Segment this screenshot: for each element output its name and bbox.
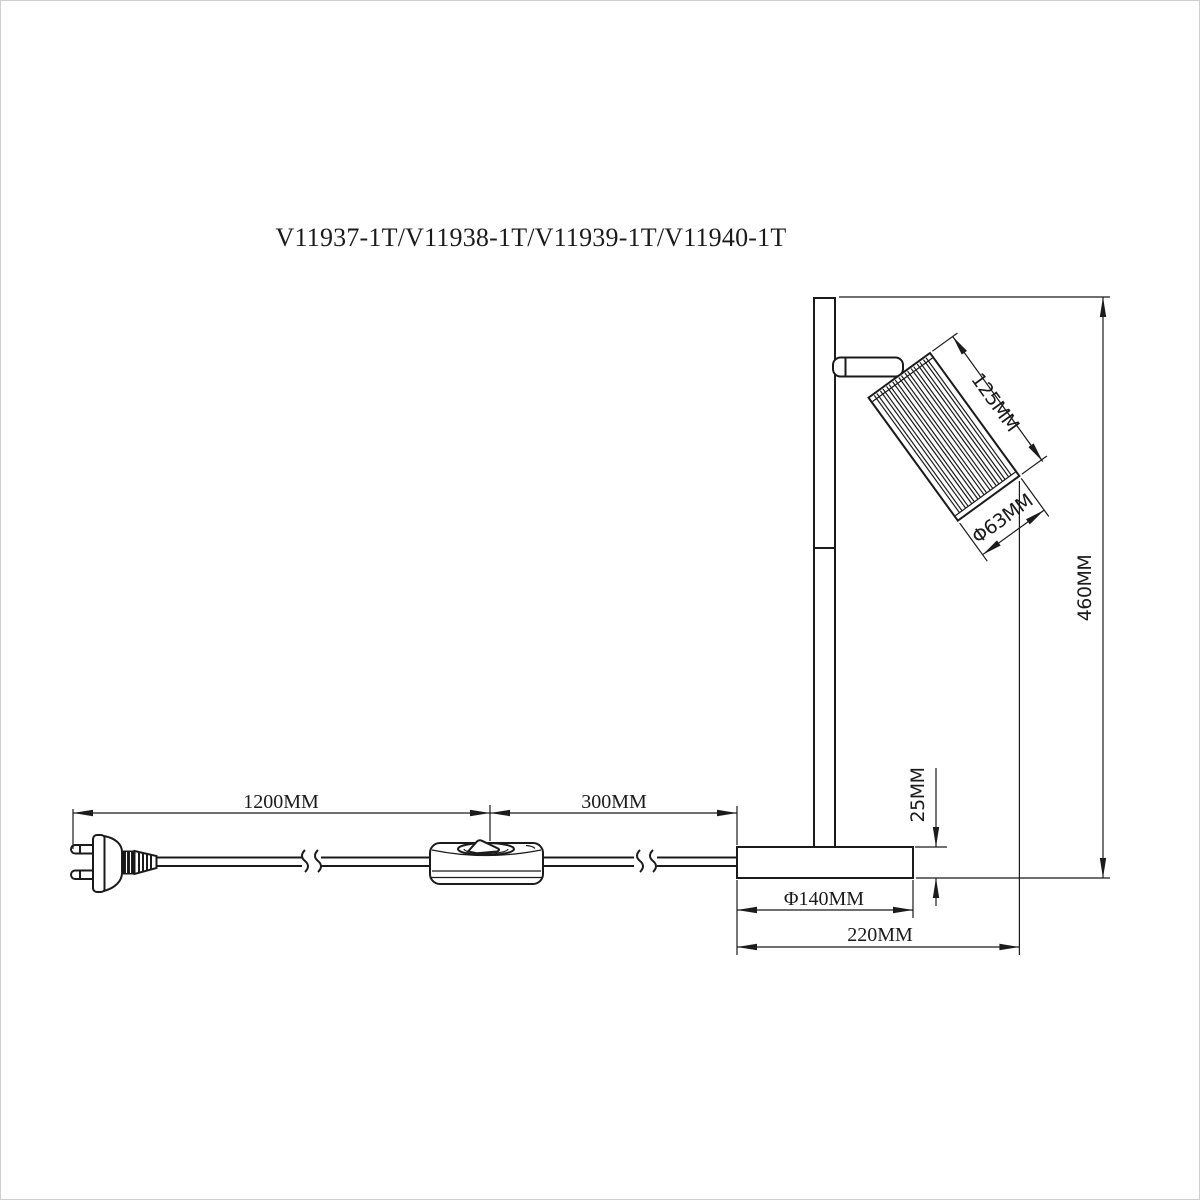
dim-label-140mm: Φ140MM bbox=[784, 888, 864, 910]
lamp-head bbox=[869, 353, 1020, 521]
dim-total-depth: 220MM bbox=[737, 481, 1019, 955]
technical-drawing: V11937-1T/V11938-1T/V11939-1T/V11940-1T bbox=[0, 0, 1200, 1200]
lamp-pole bbox=[814, 298, 835, 847]
dim-label-25mm: 25MM bbox=[907, 768, 929, 823]
power-plug bbox=[71, 835, 157, 892]
product-code-title: V11937-1T/V11938-1T/V11939-1T/V11940-1T bbox=[276, 223, 787, 252]
plug-strain-relief bbox=[135, 851, 157, 874]
lamp-arm bbox=[833, 358, 903, 377]
lamp-base bbox=[737, 847, 913, 878]
dim-label-300mm: 300MM bbox=[581, 791, 647, 813]
dim-label-1200mm: 1200MM bbox=[243, 791, 319, 813]
diagram-canvas: V11937-1T/V11938-1T/V11939-1T/V11940-1T bbox=[0, 0, 1200, 1200]
dim-label-460mm: 460MM bbox=[1074, 555, 1096, 622]
dim-label-220mm: 220MM bbox=[847, 924, 913, 946]
dim-cord-1200mm: 1200MM bbox=[73, 791, 490, 849]
dim-cord-300mm: 300MM bbox=[490, 791, 737, 845]
inline-switch bbox=[430, 840, 543, 884]
plug-grip-ribs bbox=[122, 851, 135, 874]
